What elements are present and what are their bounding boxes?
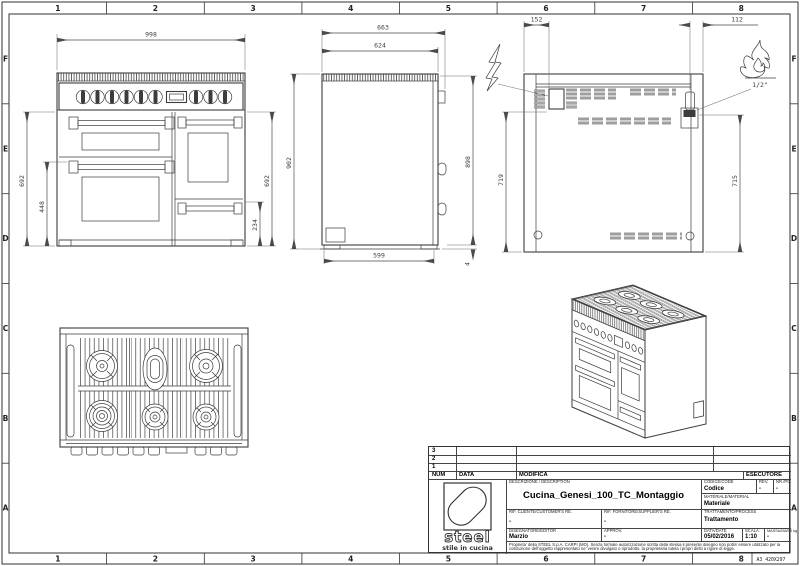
- dim-side-height-body: 898: [464, 156, 472, 168]
- burner-front-left: [87, 351, 118, 382]
- legal-disclaimer: Proprieta' della STEEL S.p.A. CARPI (MO)…: [509, 543, 788, 554]
- title-block: 3 2 1 NUM DATA MODIFICA ESECUTORE steel …: [428, 446, 790, 553]
- grid-col-label: 1: [55, 4, 60, 13]
- dim-back-gas-offset: 112: [731, 16, 743, 24]
- side-view: 663 624 902 898 4 599: [285, 24, 477, 266]
- grid-col-label: 7: [641, 555, 646, 564]
- grid-row-label: D: [2, 234, 8, 243]
- trattamento-value: Trattamento: [704, 517, 738, 523]
- dim-back-elec-offset: 152: [531, 16, 543, 24]
- gas-connection-icon: 1/2": [697, 40, 776, 110]
- dim-side-height-total: 902: [285, 157, 293, 169]
- grid-row-label: A: [3, 504, 9, 513]
- dim-front-height-right: 692: [263, 175, 271, 187]
- hinge-tab: [438, 203, 446, 215]
- codice-label: CODICE/CODE: [704, 480, 734, 485]
- steel-logo: steel stile in cucina: [429, 479, 506, 554]
- grid-row-label: F: [3, 55, 8, 64]
- knobs-row: [76, 90, 232, 104]
- right-oven-door: [175, 117, 243, 214]
- grid-row-label: E: [791, 144, 796, 153]
- grid-col-label: 6: [543, 4, 548, 13]
- dim-front-drawer: 234: [251, 219, 259, 231]
- approv-value: -: [604, 534, 606, 540]
- electric-connection-icon: [486, 44, 548, 96]
- dim-front-height-left: 692: [18, 175, 26, 187]
- scala-value: 1:10: [745, 534, 757, 540]
- isometric-view: [572, 285, 706, 438]
- burner-wok: [87, 401, 118, 432]
- iso-side-face: [645, 316, 706, 438]
- rif-fornitore-label: RIF. FORNITORE/SUPPLIER'S RE.: [604, 510, 671, 515]
- rev-row-number: 2: [432, 456, 435, 462]
- date-label: DATA/DATE: [704, 529, 727, 534]
- electrical-connection-box: [549, 89, 564, 109]
- dim-side-depth-total: 663: [377, 24, 389, 32]
- nr-label: NR./PC.: [776, 480, 791, 485]
- massa-label: MASSA/MASS kg: [767, 529, 797, 533]
- esecutore-header: ESECUTORE: [746, 472, 782, 478]
- grid-row-label: E: [3, 144, 8, 153]
- grid-col-label: 3: [250, 4, 255, 13]
- dim-side-depth-body: 624: [374, 42, 386, 50]
- dim-side-foot: 4: [464, 262, 472, 266]
- burner-large: [190, 350, 223, 383]
- drawing-title: Cucina_Genesi_100_TC_Montaggio: [506, 490, 701, 501]
- vent-slots: [534, 90, 682, 238]
- grid-row-label: F: [791, 55, 796, 64]
- knob-bumps: [71, 447, 237, 455]
- left-oven-doors: [59, 117, 174, 221]
- gas-thread-label: 1/2": [752, 81, 768, 89]
- grid-row-label: C: [791, 324, 797, 333]
- burner-right-rear: [193, 404, 219, 430]
- dim-side-base: 599: [373, 252, 385, 260]
- grid-col-label: 8: [739, 555, 744, 564]
- disegnatore-label: DISEGNATORE/EDITOR: [509, 529, 556, 534]
- dim-back-gas-height: 715: [731, 175, 739, 187]
- burner-oval: [143, 348, 167, 390]
- grid-row-label: D: [791, 234, 797, 243]
- rif-cliente-label: RIF. CLIENTE/CUSTOMER'S RE.: [509, 510, 572, 515]
- rev-row-number: 3: [432, 448, 435, 454]
- drawing-sheet: 1 2 3 4 5 6 7 8 1 2 3 4 5 6 7 8 A3 420X2…: [0, 0, 800, 566]
- grid-row-label: A: [791, 504, 797, 513]
- mounting-hole: [534, 231, 542, 239]
- side-rail: [67, 345, 74, 437]
- description-label: DESCRIZIONE / DESCRIPTION: [509, 480, 570, 485]
- materiale-label: MATERIALE/MATERIAL: [704, 495, 749, 500]
- grid-row-label: B: [3, 414, 9, 423]
- grid-row-label: C: [3, 324, 9, 333]
- grid-row-label: B: [791, 414, 797, 423]
- grid-col-label: 4: [348, 555, 353, 564]
- rif-fornitore-value: -: [604, 519, 606, 525]
- control-panel: [59, 83, 243, 110]
- sheet-format-label: A3 420X297: [757, 557, 786, 563]
- scala-label: SCALA: [745, 529, 759, 534]
- burner-mid-rear: [142, 404, 168, 430]
- grid-col-label: 5: [446, 555, 451, 564]
- mounting-hole: [686, 232, 694, 240]
- side-knob-profile: [438, 91, 445, 103]
- grid-col-label: 2: [153, 4, 158, 13]
- top-view: [60, 328, 248, 455]
- rev-row-number: 1: [432, 464, 435, 470]
- side-dimensions: 663 624 902 898 4 599: [285, 24, 477, 266]
- grid-col-label: 2: [153, 555, 158, 564]
- front-view: 998 692 448 692 234: [18, 31, 276, 247]
- data-header: DATA: [459, 472, 474, 478]
- side-service-box: [326, 228, 345, 242]
- modifica-header: MODIFICA: [519, 472, 548, 478]
- dim-front-width: 998: [145, 31, 157, 39]
- dim-front-oven-left: 448: [38, 201, 46, 213]
- grid-col-label: 8: [739, 4, 744, 13]
- grid-col-label: 4: [348, 4, 353, 13]
- grid-col-label: 6: [543, 555, 548, 564]
- date-value: 05/02/2016: [704, 534, 734, 540]
- logo-tagline: stile in cucina: [442, 544, 493, 552]
- hinge-tab: [438, 163, 446, 175]
- massa-value: -: [767, 534, 769, 540]
- dim-back-elec-height: 719: [497, 174, 505, 186]
- grid-col-label: 7: [641, 4, 646, 13]
- materiale-value: Materiale: [704, 501, 730, 507]
- approv-label: APPROV.: [604, 529, 622, 534]
- rev-label: REV.: [759, 480, 768, 485]
- grid-col-label: 1: [55, 555, 60, 564]
- disegnatore-value: Marzio: [509, 534, 528, 540]
- num-header: NUM: [432, 472, 445, 478]
- rev-value: -: [759, 486, 761, 492]
- back-view: 1/2" 152 112 719 715: [486, 16, 776, 253]
- codice-value: Codice: [704, 486, 724, 492]
- rif-cliente-value: -: [509, 519, 511, 525]
- side-rail: [234, 345, 241, 437]
- nr-value: -: [776, 486, 778, 492]
- gas-connection: [681, 92, 698, 128]
- trattamento-label: TRATTAMENTO/PROCESS: [704, 510, 756, 515]
- grid-col-label: 3: [250, 555, 255, 564]
- grid-col-label: 5: [446, 4, 451, 13]
